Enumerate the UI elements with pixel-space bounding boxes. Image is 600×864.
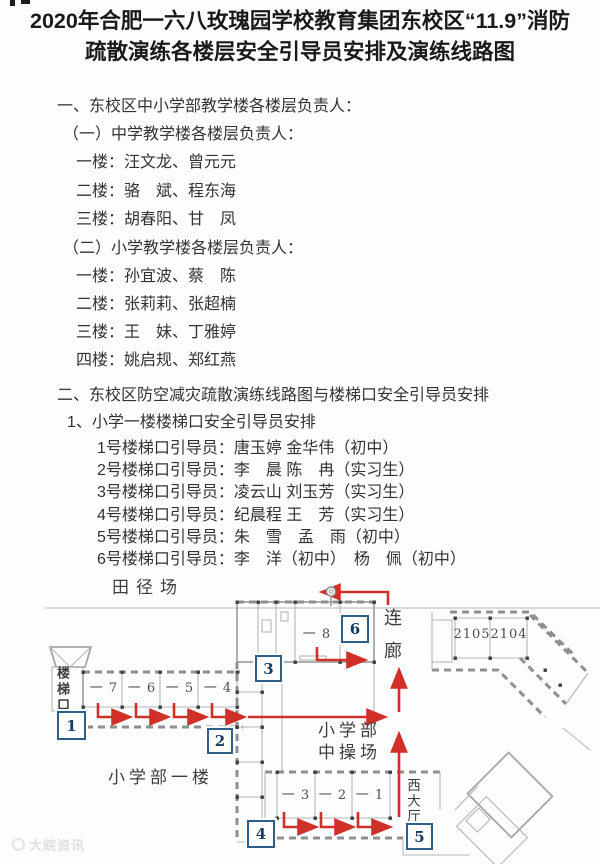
section2-heading: 二、东校区防空减灾疏散演练线路图与楼梯口安全引导员安排 (57, 386, 489, 406)
room-label-2: 一 2 (314, 784, 352, 803)
room-label-2105: 2105 (453, 627, 491, 642)
stair-exit-box-2: 2 (207, 728, 233, 754)
floor-row: 二楼：骆 斌、程东海 (76, 182, 236, 202)
floor-row: 三楼：胡春阳、甘 凤 (76, 210, 236, 230)
watermark: 大皖资讯 (12, 835, 85, 854)
floor-plan-drawing (0, 570, 600, 864)
room-label-2104: 2104 (490, 627, 528, 642)
guide-row: 6号楼梯口引导员：李 洋（初中） 杨 佩（初中） (97, 550, 466, 570)
west-hall-label: 西大厅 (402, 778, 422, 825)
section1-heading: 一、东校区中小学部教学楼各楼层负责人： (57, 97, 361, 117)
room-label-3: 一 3 (277, 784, 315, 803)
stair-exit-box-5: 5 (406, 823, 433, 850)
stair-exit-box-1: 1 (57, 711, 86, 740)
floor-row: 一楼：汪文龙、曾元元 (76, 153, 236, 173)
guide-row: 4号楼梯口引导员：纪晨程 王 芳（实习生） (97, 506, 414, 526)
guide-row: 2号楼梯口引导员：李 晨 陈 冉（实习生） (97, 461, 414, 481)
guide-row: 3号楼梯口引导员：凌云山 刘玉芳（实习生） (97, 483, 414, 503)
stair-exit-box-4: 4 (247, 820, 275, 848)
stair-entrance-label: 楼梯口 (53, 666, 72, 714)
stair-exit-box-3: 3 (255, 655, 282, 682)
primary-first-floor-label: 小学部一楼 (108, 763, 213, 788)
guide-row: 1号楼梯口引导员：唐玉婷 金华伟（初中） (97, 439, 398, 459)
floor-row: 二楼：张莉莉、张超楠 (76, 295, 236, 315)
page-title: 2020年合肥一六八玫瑰园学校教育集团东校区“11.9”消防疏散演练各楼层安全引… (28, 6, 572, 68)
crop-artifact (10, 0, 15, 6)
middle-playground-label: 小学部中操场 (318, 720, 380, 764)
document-page: 2020年合肥一六八玫瑰园学校教育集团东校区“11.9”消防疏散演练各楼层安全引… (0, 0, 600, 864)
room-label-4: 一 4 (199, 677, 237, 696)
room-label-6: 一 6 (123, 677, 161, 696)
floor-plan: 田径场 楼梯口 连廊 西大厅 小学部一楼 小学部中操场 一 7 一 6 一 5 … (0, 570, 600, 864)
section2-subheading: 1、小学一楼楼梯口安全引导员安排 (67, 413, 316, 433)
track-field-label: 田径场 (112, 573, 184, 598)
corridor-label: 连廊 (379, 608, 405, 674)
floor-row: 一楼：孙宜波、蔡 陈 (76, 267, 236, 287)
guide-row: 5号楼梯口引导员：朱 雪 孟 雨（初中） (97, 528, 410, 548)
room-label-7: 一 7 (85, 677, 123, 696)
watermark-text: 大皖资讯 (29, 835, 85, 854)
floor-row: 三楼：王 妹、丁雅婷 (76, 323, 236, 343)
stair-exit-box-6: 6 (341, 615, 369, 643)
playground-line1: 小学部 (318, 721, 381, 740)
watermark-logo-icon (12, 838, 25, 851)
playground-line2: 中操场 (318, 743, 381, 762)
group2-heading: （二）小学教学楼各楼层负责人： (63, 239, 303, 259)
group1-heading: （一）中学教学楼各楼层负责人： (63, 125, 303, 145)
room-label-1: 一 1 (351, 784, 389, 803)
room-label-5: 一 5 (161, 677, 199, 696)
crop-artifact (21, 0, 30, 4)
floor-row: 四楼：姚启规、郑红燕 (76, 351, 236, 371)
room-label-8: 一 8 (298, 623, 336, 642)
